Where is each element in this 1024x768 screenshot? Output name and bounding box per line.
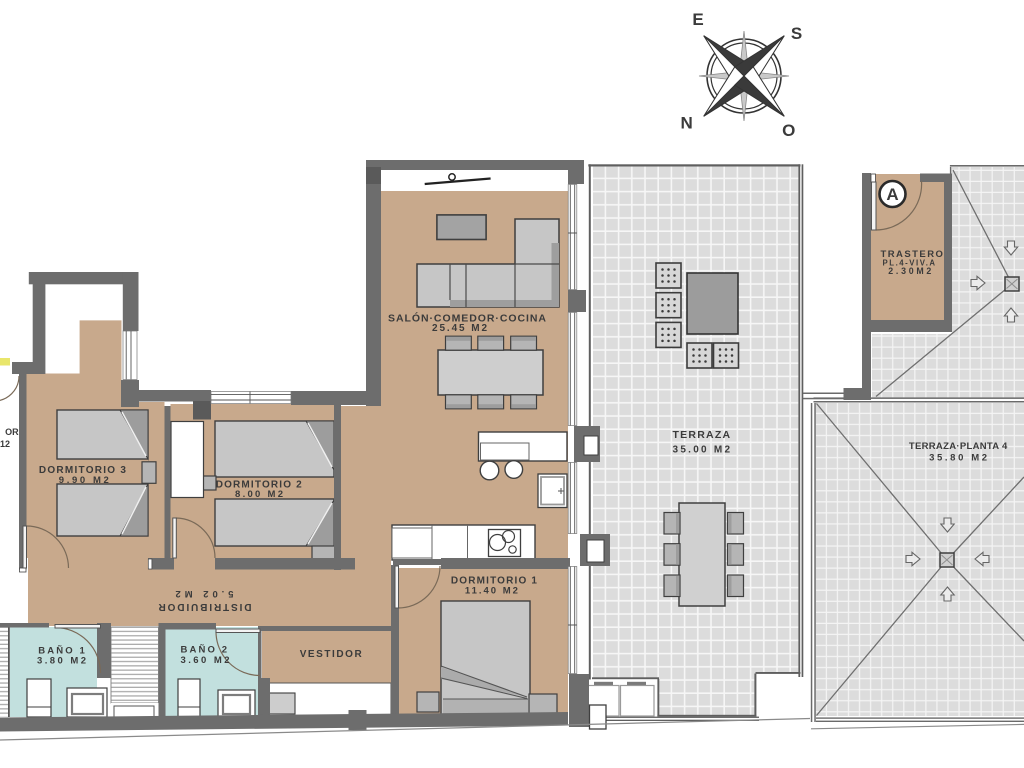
svg-text:TERRAZA: TERRAZA <box>673 429 731 441</box>
svg-text:OR: OR <box>5 427 19 437</box>
svg-text:35.80 M2: 35.80 M2 <box>929 453 987 464</box>
svg-text:11.40 M2: 11.40 M2 <box>465 585 518 596</box>
svg-text:E: E <box>692 10 703 29</box>
svg-text:25.45 M2: 25.45 M2 <box>432 323 487 334</box>
svg-text:35.00 M2: 35.00 M2 <box>673 444 731 455</box>
svg-text:DISTRIBUIDOR: DISTRIBUIDOR <box>158 601 252 612</box>
svg-text:A: A <box>886 185 898 204</box>
svg-text:12: 12 <box>0 439 10 449</box>
svg-text:TERRAZA·PLANTA 4: TERRAZA·PLANTA 4 <box>909 441 1008 452</box>
svg-text:S: S <box>791 24 802 43</box>
svg-text:N: N <box>680 114 692 133</box>
svg-text:O: O <box>782 121 795 140</box>
